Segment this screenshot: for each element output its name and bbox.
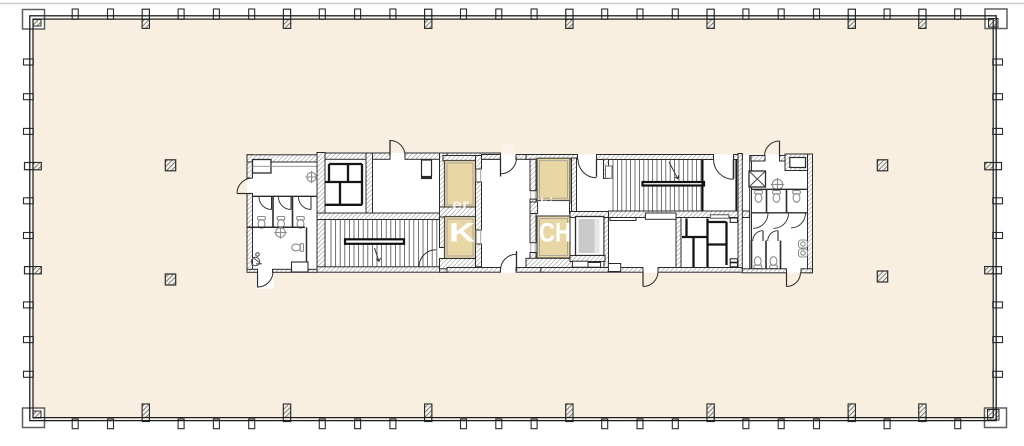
svg-text:CH: CH <box>539 218 571 248</box>
svg-text:K: K <box>449 218 476 248</box>
svg-text:bi: bi <box>540 196 553 213</box>
svg-text:er: er <box>452 197 469 214</box>
